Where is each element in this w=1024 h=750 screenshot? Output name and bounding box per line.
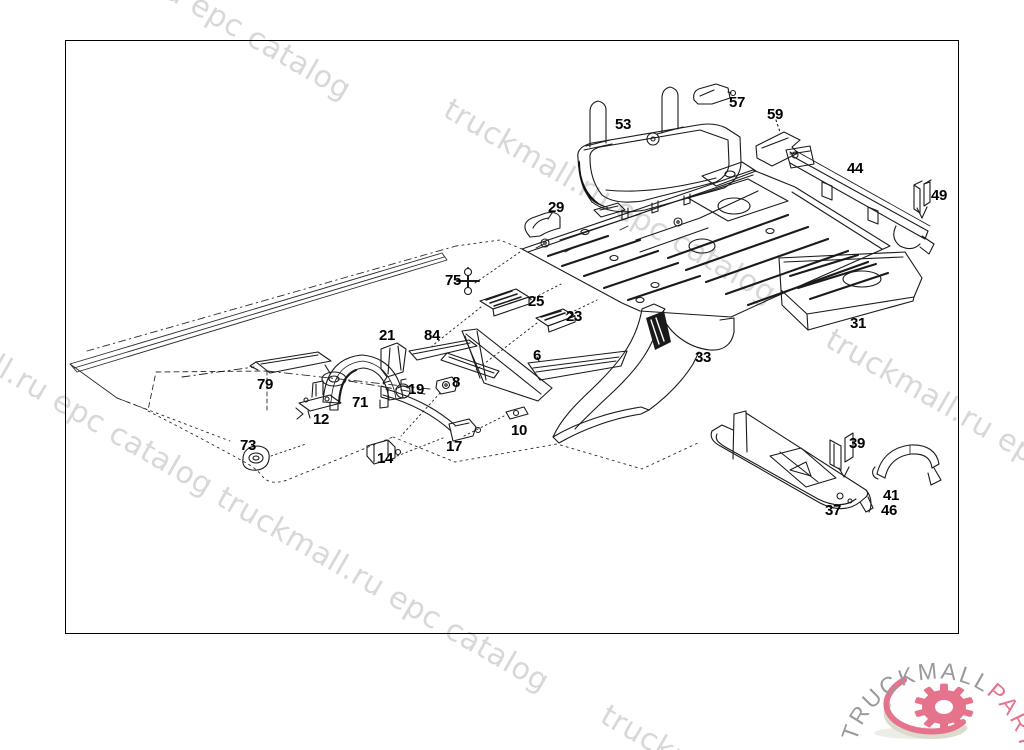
- part-label-21[interactable]: 21: [379, 328, 395, 343]
- part-label-29[interactable]: 29: [548, 200, 564, 215]
- part-label-17[interactable]: 17: [446, 439, 462, 454]
- part-label-41[interactable]: 41: [883, 488, 899, 503]
- part-label-6[interactable]: 6: [533, 348, 541, 363]
- part-label-33[interactable]: 33: [695, 350, 711, 365]
- part-label-75[interactable]: 75: [445, 273, 461, 288]
- part-label-23[interactable]: 23: [566, 309, 582, 324]
- part-label-59[interactable]: 59: [767, 107, 783, 122]
- part-label-39[interactable]: 39: [849, 436, 865, 451]
- part-label-53[interactable]: 53: [615, 117, 631, 132]
- part-label-73[interactable]: 73: [240, 438, 256, 453]
- part-label-79[interactable]: 79: [257, 377, 273, 392]
- part-label-46[interactable]: 46: [881, 503, 897, 518]
- part-label-19[interactable]: 19: [408, 382, 424, 397]
- part-label-44[interactable]: 44: [847, 161, 863, 176]
- part-label-layer: 5753594449297525232184313367981971121073…: [0, 0, 1024, 750]
- catalog-page: truckmall.ru epc catalogtruckmall.ru epc…: [0, 0, 1024, 750]
- part-label-8[interactable]: 8: [452, 375, 460, 390]
- part-label-31[interactable]: 31: [850, 316, 866, 331]
- part-label-71[interactable]: 71: [352, 395, 368, 410]
- part-label-57[interactable]: 57: [729, 95, 745, 110]
- part-label-37[interactable]: 37: [825, 503, 841, 518]
- part-label-49[interactable]: 49: [931, 188, 947, 203]
- part-label-14[interactable]: 14: [377, 451, 393, 466]
- part-label-10[interactable]: 10: [511, 423, 527, 438]
- part-label-12[interactable]: 12: [313, 412, 329, 427]
- part-label-25[interactable]: 25: [528, 294, 544, 309]
- part-label-84[interactable]: 84: [424, 328, 440, 343]
